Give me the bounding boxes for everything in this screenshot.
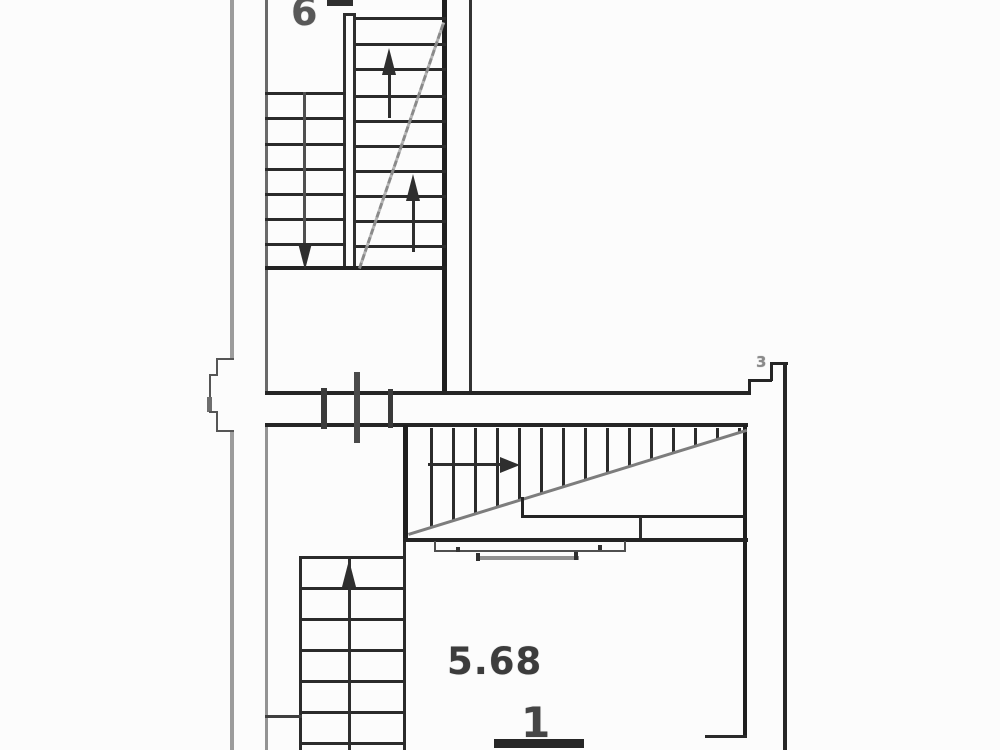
stair-tread xyxy=(356,220,446,223)
stair-tread xyxy=(300,680,404,683)
flight-divider-cap xyxy=(343,13,356,16)
lower-stair-break-line xyxy=(408,429,747,536)
stair-tread xyxy=(628,428,631,466)
stair-tread xyxy=(356,43,446,46)
stair-tread xyxy=(300,587,404,590)
stair-tread xyxy=(496,428,499,507)
stair-up-arrow-icon xyxy=(342,560,356,587)
section-mark-bar xyxy=(494,739,584,748)
stair-right-arrow-icon xyxy=(500,457,520,473)
corridor-wall-top xyxy=(265,391,751,395)
exterior-wall-right xyxy=(783,362,787,750)
flight-divider-wall xyxy=(343,13,346,269)
lower-flight-direction-line xyxy=(428,463,506,466)
door-jamb-tick xyxy=(321,388,327,429)
entry-step-tick xyxy=(456,547,460,552)
lower-stair-left-wall xyxy=(403,425,408,540)
upper-stairwell-right-wall-outer xyxy=(469,0,472,393)
landing-connector xyxy=(521,497,524,517)
lower-flight-edge xyxy=(403,540,406,750)
corridor-wall-bottom xyxy=(265,423,748,427)
entry-step-bar-end xyxy=(476,553,480,561)
stair-tread xyxy=(356,120,446,123)
room-wall-bottom-fragment xyxy=(705,735,747,738)
stair-tread xyxy=(650,428,653,459)
flight-divider-wall xyxy=(353,13,356,269)
stair-tread xyxy=(584,428,587,480)
lower-left-wall xyxy=(265,427,268,750)
stair-tread xyxy=(300,742,404,745)
stair-tread xyxy=(474,428,477,513)
stair-tread xyxy=(562,428,565,486)
stair-tread xyxy=(672,428,675,452)
corner-mark-label: 3 xyxy=(756,353,766,371)
cut-element-top xyxy=(327,0,353,6)
exterior-wall-left-lower xyxy=(230,431,234,750)
stair-up-arrow-icon xyxy=(382,48,396,75)
stair-up-arrow-icon xyxy=(406,174,420,201)
lower-left-flight-edge xyxy=(299,556,302,750)
floor-number-label: 6 xyxy=(291,0,317,34)
stair-tread xyxy=(356,195,446,198)
bay-wall-segment xyxy=(216,430,234,432)
stair-tread xyxy=(356,95,446,98)
upper-stair-landing-edge xyxy=(265,266,447,270)
entry-step-tick xyxy=(598,545,602,550)
stair-tread xyxy=(606,428,609,473)
exterior-wall-left-upper xyxy=(230,0,234,360)
stair-tread xyxy=(300,649,404,652)
wall-connector xyxy=(265,715,302,718)
stair-tread xyxy=(430,428,433,527)
stair-tread xyxy=(356,68,446,71)
bay-wall-segment xyxy=(216,411,218,432)
bay-wall-segment xyxy=(207,397,212,412)
stair-tread xyxy=(452,428,455,520)
bay-wall-segment xyxy=(217,358,234,360)
stair-tread xyxy=(356,245,446,248)
door-jamb-tick xyxy=(388,389,393,428)
entry-step-bar-end xyxy=(574,552,578,560)
entry-step-bar xyxy=(476,556,579,560)
left-flight-direction-line xyxy=(303,92,306,250)
stair-tread xyxy=(300,711,404,714)
upper-stairwell-left-wall xyxy=(265,0,268,392)
stair-tread xyxy=(540,428,543,493)
stair-tread xyxy=(300,556,404,559)
floor-plan: 6 3 5.68 1 xyxy=(0,0,1000,750)
stair-tread xyxy=(300,618,404,621)
stair-tread xyxy=(356,17,446,20)
room-wall-right xyxy=(743,425,747,738)
door-center-tick xyxy=(354,372,360,443)
stair-tread xyxy=(356,170,446,173)
room-area-label: 5.68 xyxy=(447,640,542,683)
wall-jog xyxy=(748,379,772,382)
stair-down-arrow-icon xyxy=(298,243,312,270)
landing-edge xyxy=(521,515,746,518)
